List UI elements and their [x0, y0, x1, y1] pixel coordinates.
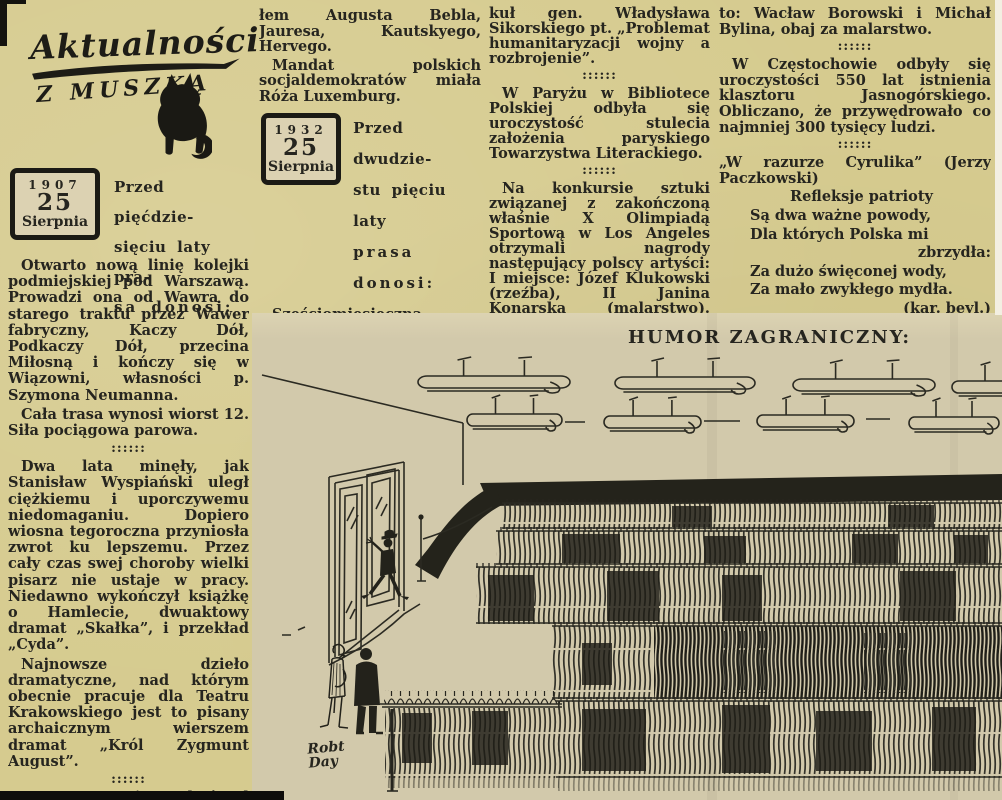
section-separator: ::::::	[719, 40, 991, 54]
article-paragraph: Cała trasa wynosi wiorst 12. Siła pociąg…	[8, 407, 249, 439]
article-paragraph: Dwa lata minęły, jak Stanisław Wyspiańsk…	[8, 459, 249, 653]
section-separator: ::::::	[8, 773, 249, 787]
intro-1932: Przed dwudzie- stu pięciu laty prasa don…	[353, 113, 481, 299]
cartoon-illustration	[252, 313, 1002, 800]
article-paragraph: Otwarto nową linię kolejki podmiejskiej …	[8, 258, 249, 404]
black-cat-icon	[148, 72, 212, 160]
column-1: Otwarto nową linię kolejki podmiejskiej …	[8, 258, 249, 792]
newspaper-clipping: Aktualności z muszką 1907 25 Sierpnia Pr…	[0, 0, 1002, 800]
date-stamp-1907: 1907 25 Sierpnia	[10, 168, 100, 240]
poem-header: „W razurze Cyrulika” (Jerzy Paczkowski)	[719, 155, 991, 186]
article-paragraph: W Częstochowie odbyły się uroczystości 5…	[719, 57, 991, 135]
scan-edge-artifact	[0, 791, 284, 800]
column-4: to: Wacław Borowski i Michał Bylina, oba…	[719, 6, 991, 314]
article-paragraph: W Paryżu w Bibliotece Polskiej odbyła si…	[489, 86, 710, 161]
poem-line: Za mało zwykłego mydła.	[719, 282, 991, 298]
poem-line: Są dwa ważne powody,	[719, 208, 991, 224]
scan-edge-artifact	[995, 0, 1002, 315]
customer-figure	[354, 648, 383, 733]
cartoon-panel: HUMOR ZAGRANICZNY:	[252, 313, 1002, 800]
section-separator: ::::::	[489, 164, 710, 178]
stamp-month: Sierpnia	[17, 214, 93, 231]
column-2: łem Augusta Bebla, Jauresa, Kautskyego, …	[259, 8, 481, 315]
stamp-day: 25	[17, 192, 93, 214]
scan-edge-artifact	[0, 0, 7, 46]
article-paragraph: kuł gen. Władysława Sikorskiego pt. „Pro…	[489, 6, 710, 66]
article-paragraph: łem Augusta Bebla, Jauresa, Kautskyego, …	[259, 8, 481, 55]
section-separator: ::::::	[489, 69, 710, 83]
stamp-row-1932: 1932 25 Sierpnia Przed dwudzie- stu pięc…	[261, 113, 481, 299]
salesman-figure	[320, 645, 348, 729]
poem-line: Za dużo święconej wody,	[719, 264, 991, 280]
stamp-day: 25	[268, 137, 334, 159]
poem-line: zbrzydła:	[719, 245, 991, 261]
article-paragraph: Na konkursie sztuki związanej z zakończo…	[489, 181, 710, 316]
scan-edge-artifact	[0, 0, 26, 4]
artist-signature: Robt Day	[307, 739, 347, 770]
stamp-month: Sierpnia	[268, 159, 334, 176]
coat-racks	[380, 474, 1002, 791]
article-paragraph: Najnowsze dzieło dramatyczne, nad którym…	[8, 657, 249, 770]
entering-man-figure	[361, 530, 409, 600]
poem-line: Dla których Polska mi	[719, 227, 991, 243]
date-stamp-1932: 1932 25 Sierpnia	[261, 113, 341, 185]
door-drawing	[282, 462, 420, 665]
column-3: kuł gen. Władysława Sikorskiego pt. „Pro…	[489, 6, 710, 316]
section-separator: ::::::	[719, 138, 991, 152]
poem-title: Refleksje patrioty	[719, 189, 991, 205]
section-separator: ::::::	[8, 442, 249, 456]
article-paragraph: to: Wacław Borowski i Michał Bylina, oba…	[719, 6, 991, 37]
article-paragraph: Mandat polskich socjaldemokratów miała R…	[259, 58, 481, 105]
